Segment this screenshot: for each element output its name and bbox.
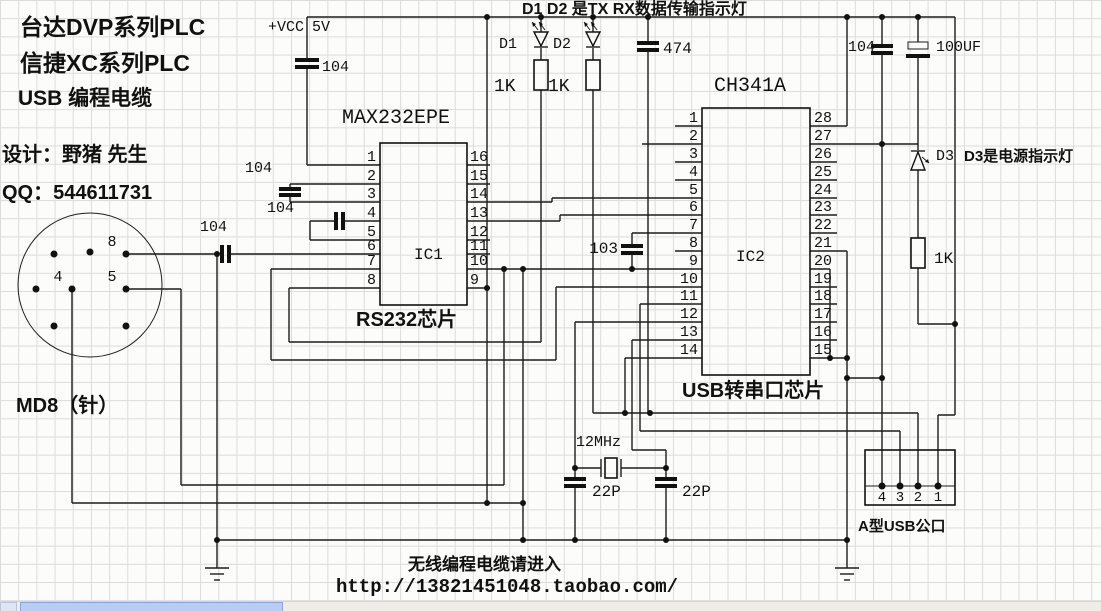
ic2-pin-r23: 23 <box>814 199 832 216</box>
ic2-pin-r20: 20 <box>814 253 832 270</box>
crystal-icon <box>601 458 621 478</box>
ic2-pin-r24: 24 <box>814 182 832 199</box>
ic2-pin-l7: 7 <box>689 217 698 234</box>
r2-value: 1K <box>548 77 570 97</box>
brand-line-3: USB 编程电缆 <box>18 86 152 110</box>
ic2-caption: USB转串口芯片 <box>682 378 824 402</box>
ic2-pin-l6: 6 <box>689 199 698 216</box>
ic2-pin-l4: 4 <box>689 164 698 181</box>
ic2-pin-l12: 12 <box>680 306 698 323</box>
capacitor-100uf-icon <box>906 42 930 56</box>
md8-pin8-label: 8 <box>107 234 116 251</box>
cap-vcc-value: 104 <box>322 59 349 76</box>
ground-left-icon <box>205 568 229 580</box>
d3-label: D3 <box>936 148 954 165</box>
led-top-note: D1 D2 是TX RX数据传输指示灯 <box>522 0 747 18</box>
ic2-pin-r28: 28 <box>814 110 832 127</box>
ic1-pin-r9: 9 <box>470 272 479 289</box>
ic1-pin-l1: 1 <box>367 149 376 166</box>
md8-connector <box>18 213 162 357</box>
ic2-pin-l2: 2 <box>689 128 698 145</box>
ic2-pin-r27: 27 <box>814 128 832 145</box>
cap-b-value: 104 <box>267 200 294 217</box>
ic2-title: CH341A <box>714 75 786 98</box>
ic2-pin-r15: 15 <box>814 342 832 359</box>
ic1-title: MAX232EPE <box>342 107 450 130</box>
ic2-pin-r18: 18 <box>814 288 832 305</box>
ic2-pin-r19: 19 <box>814 271 832 288</box>
ic1-pin-l7: 7 <box>367 253 376 270</box>
ic2-pin-l1: 1 <box>689 110 698 127</box>
d1-label: D1 <box>499 36 517 53</box>
ic1-name: IC1 <box>414 246 443 264</box>
schematic-drawing: 台达DVP系列PLC 信捷XC系列PLC USB 编程电缆 设计：野猪 先生 Q… <box>0 0 1101 611</box>
cap-a-value: 104 <box>245 160 272 177</box>
ic2-pin-l14: 14 <box>680 342 698 359</box>
md8-label: MD8（针） <box>16 393 118 417</box>
scrollbar-thumb[interactable] <box>20 602 283 611</box>
ic1-pin-l2: 2 <box>367 168 376 185</box>
ic1-pin-r13: 13 <box>470 205 488 222</box>
usb-pin-3-label: 3 <box>896 490 904 506</box>
cap-22p-right-value: 22P <box>682 483 711 501</box>
brand-line-1: 台达DVP系列PLC <box>20 14 205 40</box>
led-d3-icon <box>911 151 929 170</box>
ic2-body <box>702 108 810 375</box>
ic2-pin-l8: 8 <box>689 235 698 252</box>
capacitor-a-icon <box>279 189 301 195</box>
scrollbar-left-button[interactable] <box>0 602 17 611</box>
usb-pin-4-label: 4 <box>878 490 886 506</box>
ic2-pin-r21: 21 <box>814 235 832 252</box>
led-d2-icon <box>584 22 600 47</box>
ic2-pin-r25: 25 <box>814 164 832 181</box>
cap-c-value: 104 <box>200 219 227 236</box>
r1-value: 1K <box>494 77 516 97</box>
capacitor-22p-right-icon <box>655 479 677 486</box>
d3-note: D3是电源指示灯 <box>964 147 1073 165</box>
ground-right-icon <box>835 568 859 580</box>
ic2-pin-l9: 9 <box>689 253 698 270</box>
schematic-canvas: 台达DVP系列PLC 信捷XC系列PLC USB 编程电缆 设计：野猪 先生 Q… <box>0 0 1101 611</box>
ic1-pin-l8: 8 <box>367 272 376 289</box>
capacitor-b-icon <box>336 212 343 230</box>
r3-value: 1K <box>934 250 954 268</box>
resistor-r2-icon <box>586 60 600 90</box>
brand-line-2: 信捷XC系列PLC <box>20 50 190 76</box>
ic1-pin-numbers: 1 2 3 4 5 6 7 8 16 15 14 13 12 11 10 9 <box>367 149 488 289</box>
cap-22p-left-value: 22P <box>592 483 621 501</box>
ic1-body <box>380 143 467 305</box>
cap-100uf-value: 100UF <box>936 39 981 56</box>
ic2-pin-r22: 22 <box>814 217 832 234</box>
ic2-pin-r26: 26 <box>814 146 832 163</box>
cap-tr-value: 104 <box>848 39 875 56</box>
ic1-pin-r14: 14 <box>470 186 488 203</box>
vcc-5v-label: 5V <box>312 19 330 36</box>
ic2-pin-l3: 3 <box>689 146 698 163</box>
ic2-pin-l13: 13 <box>680 324 698 341</box>
d2-label: D2 <box>553 36 571 53</box>
ic1-caption: RS232芯片 <box>356 307 457 331</box>
usb-connector-label: A型USB公口 <box>858 517 946 535</box>
crystal-freq: 12MHz <box>576 434 621 451</box>
cap-474-value: 474 <box>663 40 692 58</box>
md8-pin5-label: 5 <box>107 269 116 286</box>
horizontal-scrollbar[interactable] <box>0 601 1101 611</box>
vcc-label: +VCC <box>268 19 304 36</box>
ic1-pin-r15: 15 <box>470 168 488 185</box>
resistor-r3-icon <box>911 238 925 268</box>
ic1-pin-l3: 3 <box>367 186 376 203</box>
qq-label: QQ：544611731 <box>2 182 152 204</box>
ic2-pin-r17: 17 <box>814 306 832 323</box>
ic2-pin-l5: 5 <box>689 182 698 199</box>
designer-label: 设计：野猪 先生 <box>2 142 148 166</box>
cap-103-value: 103 <box>589 240 618 258</box>
ic2-pin-l10: 10 <box>680 271 698 288</box>
usb-pin-2-label: 2 <box>914 490 922 506</box>
usb-pin-1-label: 1 <box>934 490 942 506</box>
capacitor-22p-left-icon <box>564 479 586 486</box>
ic1-pin-r16: 16 <box>470 149 488 166</box>
ic1-pin-r10: 10 <box>470 253 488 270</box>
ic1-pin-l4: 4 <box>367 205 376 222</box>
capacitor-c-icon <box>222 245 229 263</box>
ic2-pin-l11: 11 <box>680 288 698 305</box>
capacitor-474-icon <box>637 43 659 50</box>
md8-pin4-label: 4 <box>53 269 62 286</box>
footer-line-2: http://13821451048.taobao.com/ <box>336 576 678 598</box>
capacitor-vcc-icon <box>295 60 319 67</box>
led-d1-icon <box>532 22 548 47</box>
footer-line-1: 无线编程电缆请进入 <box>407 554 561 574</box>
ic2-name: IC2 <box>736 248 765 266</box>
resistor-r1-icon <box>534 60 548 90</box>
ic2-pin-r16: 16 <box>814 324 832 341</box>
capacitor-103-icon <box>621 246 643 253</box>
